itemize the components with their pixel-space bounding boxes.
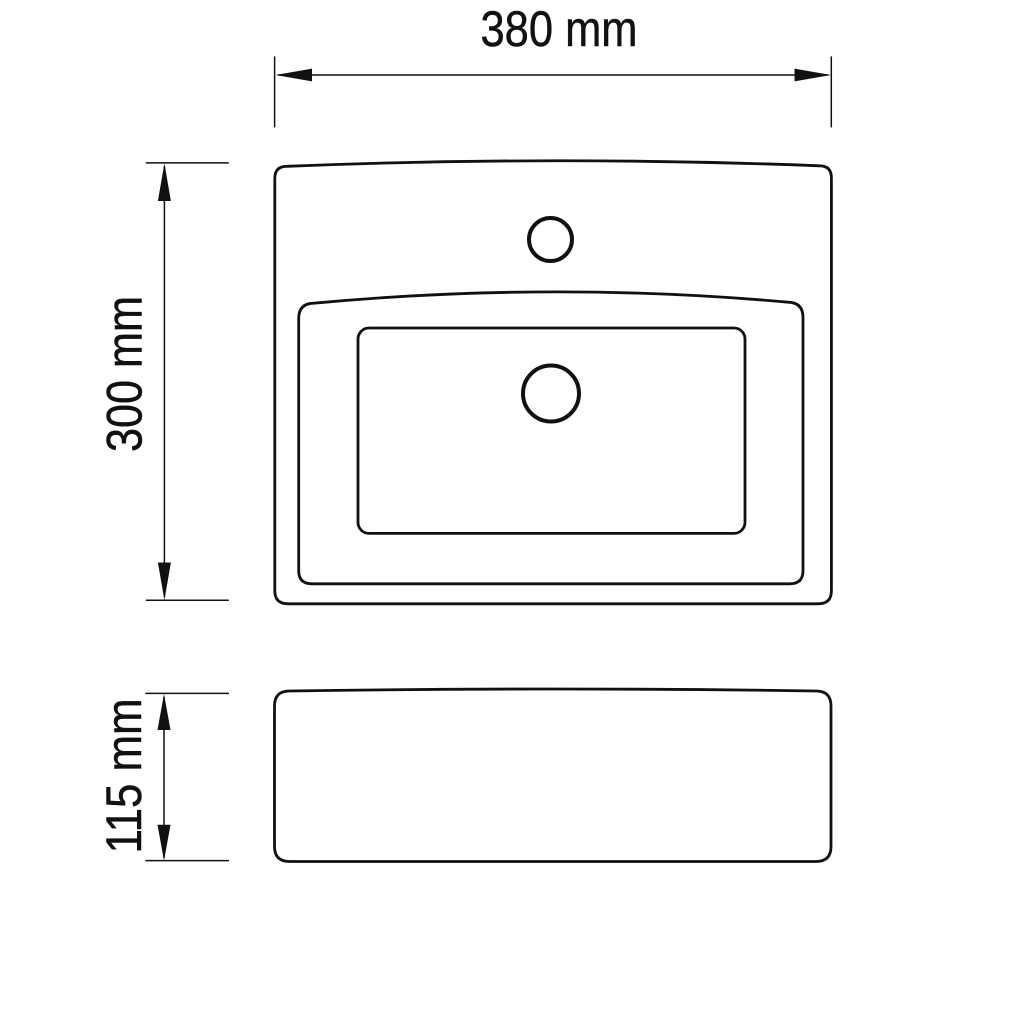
svg-text:115 mm: 115 mm — [96, 699, 152, 854]
svg-text:300 mm: 300 mm — [97, 296, 153, 452]
svg-text:380 mm: 380 mm — [481, 1, 638, 57]
